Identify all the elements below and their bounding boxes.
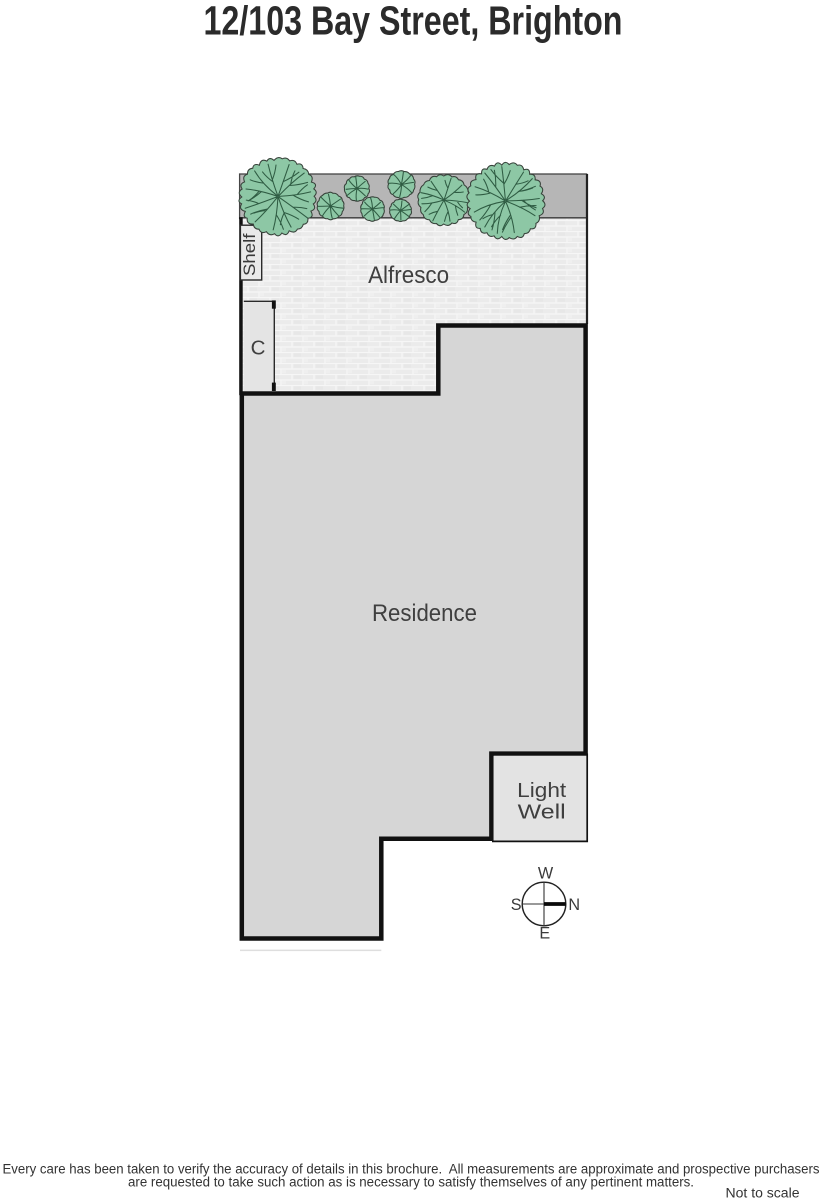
svg-text:Shelf: Shelf — [241, 233, 259, 276]
svg-text:E: E — [539, 925, 550, 943]
svg-text:C: C — [251, 337, 266, 360]
svg-text:Not to scale: Not to scale — [726, 1186, 800, 1200]
svg-text:N: N — [568, 896, 580, 914]
svg-text:Residence: Residence — [372, 600, 477, 627]
svg-text:are requested to take such act: are requested to take such action as is … — [128, 1174, 694, 1190]
svg-text:Light: Light — [517, 780, 566, 802]
svg-text:W: W — [538, 864, 554, 882]
svg-text:12/103 Bay Street, Brighton: 12/103 Bay Street, Brighton — [204, 0, 623, 44]
svg-text:Alfresco: Alfresco — [368, 262, 449, 289]
svg-text:S: S — [511, 896, 522, 914]
svg-text:Well: Well — [518, 802, 566, 824]
